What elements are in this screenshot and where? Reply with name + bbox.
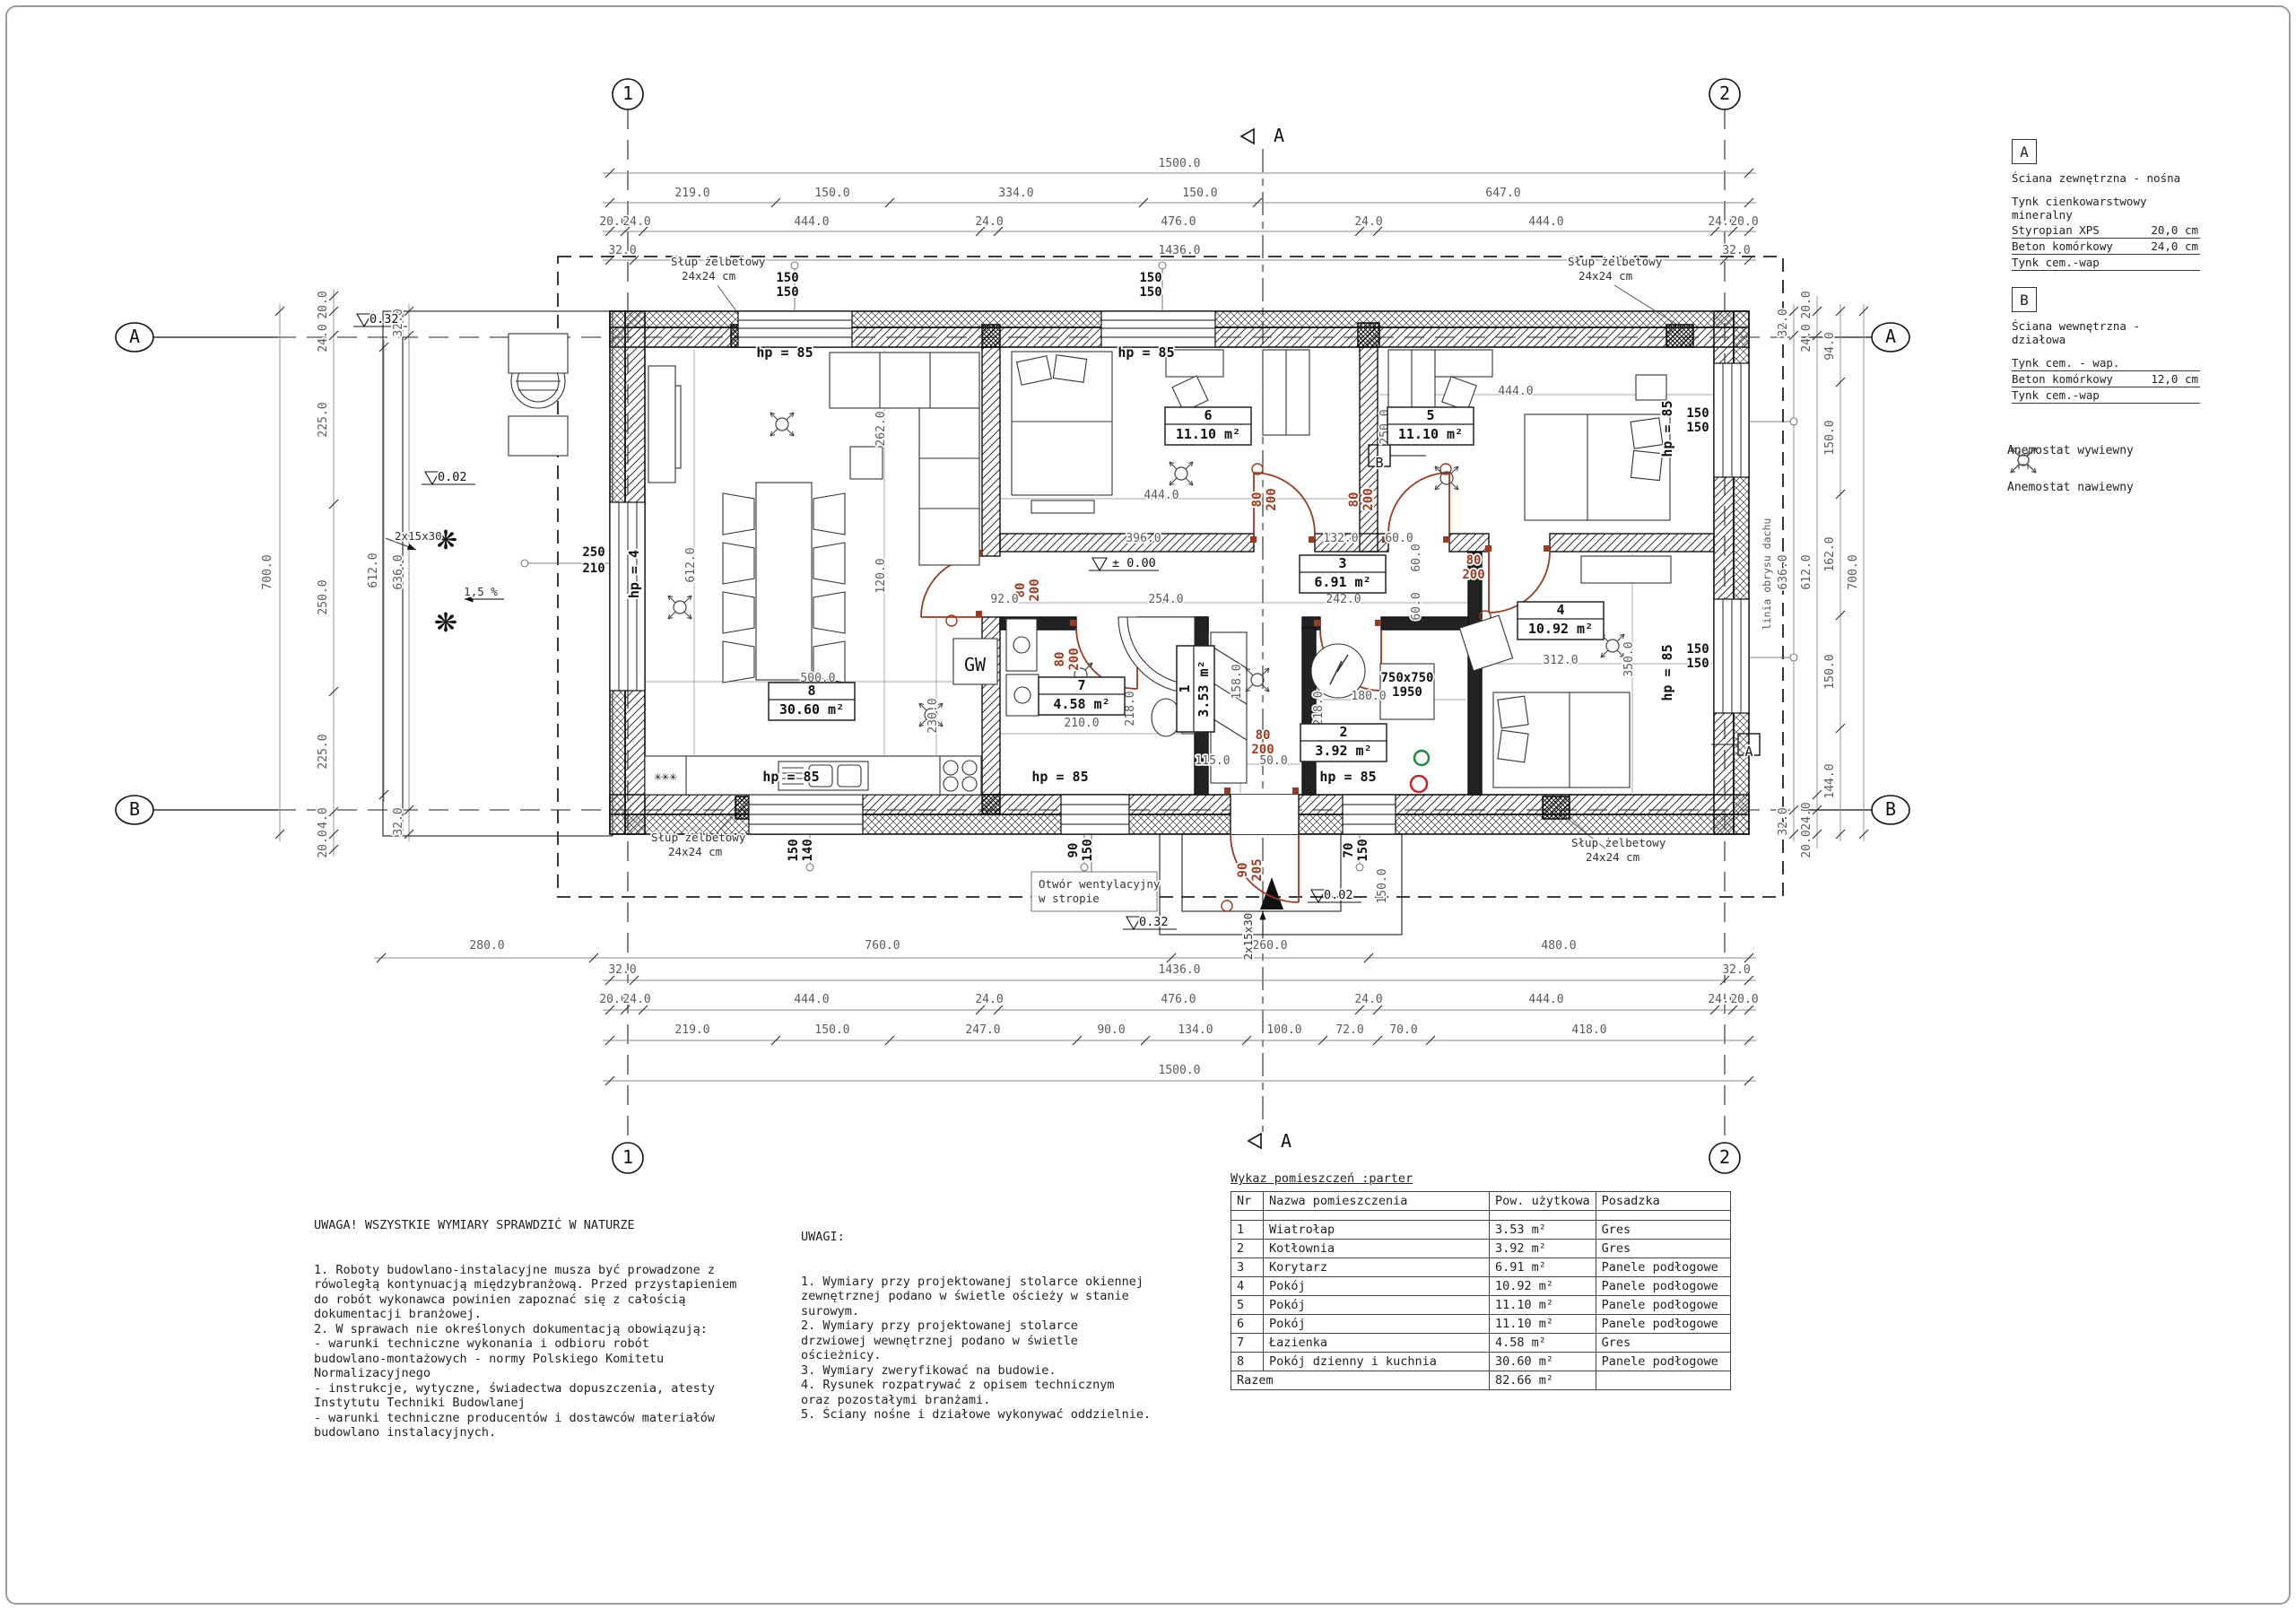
dim-label: 760.0 <box>865 939 900 953</box>
dim-label: 24x24 cm <box>1586 850 1639 864</box>
dim-label: 70.0 <box>1389 1023 1417 1037</box>
grid-axis-B: B <box>1885 798 1896 820</box>
svg-text:4: 4 <box>1556 602 1564 618</box>
dim-label: 250 <box>582 545 604 560</box>
grid-axis-A: A <box>1885 326 1896 347</box>
table-total-value: 82.66 m² <box>1490 1371 1596 1390</box>
dim-label: 24x24 cm <box>668 845 722 858</box>
vent-legend-row: Anemostat nawiewny <box>2007 481 2134 494</box>
table-cell: Panele podłogowe <box>1596 1258 1730 1277</box>
vent-legend: Anemostat wywiewny Anemostat nawiewny <box>2007 444 2134 494</box>
room-schedule: Wykaz pomieszczeń :parter NrNazwa pomies… <box>1231 1171 1731 1390</box>
table-row: 5Pokój11.10 m²Panele podłogowe <box>1231 1296 1731 1315</box>
table-blank-row <box>1231 1211 1731 1221</box>
table-header: Nr <box>1231 1192 1264 1211</box>
column-note: Słup żelbetowy <box>1571 836 1666 849</box>
room-label-8: 830.60 m² <box>769 683 855 720</box>
dim-label: 700.0 <box>1847 554 1860 589</box>
table-total-row: Razem82.66 m² <box>1231 1371 1731 1390</box>
dim-label: 24.0 <box>622 215 650 229</box>
table-row: 6Pokój11.10 m²Panele podłogowe <box>1231 1315 1731 1334</box>
table-cell: Panele podłogowe <box>1596 1353 1730 1371</box>
svg-text:6: 6 <box>1204 407 1212 423</box>
dim-label: 20.0 <box>1730 993 1758 1006</box>
legend-title: Ściana wewnętrzna - działowa <box>2012 319 2200 346</box>
dim-label: 140 <box>801 839 815 861</box>
notes-title: UWAGI: <box>801 1230 1151 1245</box>
table-header-row: NrNazwa pomieszczeniaPow. użytkowaPosadz… <box>1231 1192 1731 1211</box>
table-cell: Wiatrołap <box>1264 1221 1490 1240</box>
dim-label: 612.0 <box>684 547 698 582</box>
dim-label: 80 <box>1053 652 1067 667</box>
dim-label: 32.0 <box>1722 963 1750 977</box>
dim-label: 612.0 <box>367 553 380 587</box>
column-note: Słup żelbetowy <box>671 255 766 268</box>
dim-label: 134.0 <box>1178 1023 1213 1037</box>
room-label-1: 13.53 m² <box>1177 646 1214 732</box>
table-header: Nazwa pomieszczenia <box>1264 1192 1490 1211</box>
dim-label: 32.0 <box>608 244 636 257</box>
dim-label: 20.0 <box>317 291 330 318</box>
dim-label: 100.0 <box>1266 1023 1301 1037</box>
table-row: 4Pokój10.92 m²Panele podłogowe <box>1231 1277 1731 1296</box>
desk <box>1435 350 1492 377</box>
toilet <box>1152 699 1180 736</box>
room-label-4: 410.92 m² <box>1518 602 1604 640</box>
bench <box>1031 500 1094 513</box>
note-line: 4. Rysunek rozpatrywać z opisem technicz… <box>801 1378 1151 1393</box>
svg-text:3: 3 <box>1338 555 1346 571</box>
table-row: 7Łazienka4.58 m²Gres <box>1231 1334 1731 1353</box>
water-symbol <box>1411 776 1427 792</box>
table-cell: Panele podłogowe <box>1596 1315 1730 1334</box>
dim-label: 1436.0 <box>1159 963 1201 977</box>
dim-label: 150 <box>1686 406 1709 421</box>
dim-label: 312.0 <box>1543 654 1578 667</box>
chair <box>813 493 845 535</box>
dim-label: 150 <box>776 285 798 300</box>
dim-label: 1950 <box>1392 685 1422 700</box>
tv-cabinet <box>648 366 675 483</box>
note-line: Normalizacyjnego <box>314 1366 736 1381</box>
note-line: - instrukcje, wytyczne, świadectwa dopus… <box>314 1381 736 1397</box>
dim-label: 24.0 <box>1800 802 1813 830</box>
note-line: surowym. <box>801 1304 1151 1319</box>
table-cell: 2 <box>1231 1240 1264 1258</box>
dim-label: 636.0 <box>1777 554 1790 589</box>
fridge-symbol: ✳✳✳ <box>654 770 677 784</box>
note-line: oraz pozostałymi branżami. <box>801 1393 1151 1408</box>
dim-label: 254.0 <box>1148 593 1183 606</box>
dim-label: 24.0 <box>1354 215 1382 229</box>
dim-label: 32.0 <box>392 807 405 835</box>
note-line: drzwiowej wewnętrznej podano w świetle <box>801 1334 1151 1349</box>
vent-opening-note: Otwór wentylacyjny <box>1039 877 1161 891</box>
svg-text:3.92 m²: 3.92 m² <box>1315 743 1371 759</box>
svg-text:2: 2 <box>1339 724 1347 740</box>
dim-label: 418.0 <box>1571 1023 1606 1037</box>
dim-label: hp = 85 <box>1659 400 1675 457</box>
level-marker: 0.32 <box>1139 915 1169 929</box>
dim-label: 20.0 <box>317 830 330 857</box>
dim-label: hp = 4 <box>626 550 642 598</box>
dim-label: hp = 85 <box>762 769 819 785</box>
dim-label: 92.0 <box>990 593 1018 606</box>
svg-text:11.10 m²: 11.10 m² <box>1398 426 1463 442</box>
table-cell: Panele podłogowe <box>1596 1277 1730 1296</box>
dim-label: 72.0 <box>1335 1023 1363 1037</box>
uwagi-notes: UWAGI: 1. Wymiary przy projektowanej sto… <box>801 1200 1151 1452</box>
dim-label: 90 <box>1236 863 1250 878</box>
dim-label: 612.0 <box>1800 554 1813 589</box>
note-line: - warunki techniczne producentów i dosta… <box>314 1411 736 1426</box>
dim-label: hp = 85 <box>1118 344 1174 361</box>
coffee-table <box>850 447 883 479</box>
table-cell: Pokój <box>1264 1277 1490 1296</box>
dim-label: 115.0 <box>1195 754 1230 768</box>
grid-axis-B: B <box>129 798 140 820</box>
door-room5 <box>1388 473 1449 534</box>
svg-text:6.91 m²: 6.91 m² <box>1314 574 1370 590</box>
table-header: Posadzka <box>1596 1192 1730 1211</box>
vent-legend-label: Anemostat nawiewny <box>2007 481 2134 494</box>
dim-label: 444.0 <box>1528 215 1563 229</box>
table-cell: 3 <box>1231 1258 1264 1277</box>
gw-appliance-label: GW <box>964 654 987 675</box>
level-marker: 0.02 <box>438 470 467 484</box>
svg-text:8: 8 <box>807 683 815 699</box>
note-line: rówoległą kontynuacją międzybranżową. Pr… <box>314 1277 736 1292</box>
sofa <box>830 352 979 408</box>
dim-label: 144.0 <box>1823 763 1837 798</box>
svg-text:1: 1 <box>1177 684 1193 692</box>
chair <box>813 592 845 633</box>
room-schedule-title: Wykaz pomieszczeń :parter <box>1231 1171 1731 1186</box>
room-schedule-table: NrNazwa pomieszczeniaPow. użytkowaPosadz… <box>1231 1191 1731 1390</box>
table-row: 3Korytarz6.91 m²Panele podłogowe <box>1231 1258 1731 1277</box>
note-line: 5. Ściany nośne i działowe wykonywać odd… <box>801 1407 1151 1423</box>
dim-label: 150 <box>787 839 801 861</box>
dim-label: 50.0 <box>1259 754 1287 768</box>
gas-symbol <box>1414 751 1429 765</box>
note-line: Instytutu Techniki Budowlanej <box>314 1396 736 1411</box>
legend-layer: Beton komórkowy12,0 cm <box>2012 371 2200 387</box>
room-label-3: 36.91 m² <box>1300 555 1386 593</box>
floor-plan-sheet: 1500.0219.0150.0334.0150.0647.020.024.04… <box>0 0 2296 1610</box>
chair <box>813 543 845 584</box>
column-note: Słup żelbetowy <box>1568 255 1663 268</box>
note-line: ościeżnicy. <box>801 1348 1151 1363</box>
table-cell: Pokój dzienny i kuchnia <box>1264 1353 1490 1371</box>
dim-label: 80 <box>1256 728 1271 743</box>
table-cell: Pokój <box>1264 1315 1490 1334</box>
table-cell: 7 <box>1231 1334 1264 1353</box>
dim-label: 150.0 <box>1182 187 1217 200</box>
legend-layer: Tynk cem.-wap <box>2012 255 2200 271</box>
dim-label: 230.0 <box>926 698 940 733</box>
table-cell: Korytarz <box>1264 1258 1490 1277</box>
dim-label: 200 <box>1028 579 1042 601</box>
dim-label: 150 <box>1356 839 1370 861</box>
dim-label: 60.0 <box>1385 532 1413 545</box>
table-cell: 30.60 m² <box>1490 1353 1596 1371</box>
dim-label: 150 <box>776 271 798 285</box>
legend-letter-A: A <box>2012 139 2037 164</box>
dim-label: 219.0 <box>674 1023 709 1037</box>
dim-label: 60.0 <box>1410 592 1423 620</box>
dim-label: linia obrysu dachu <box>1761 518 1773 631</box>
dim-label: 444.0 <box>1144 489 1178 502</box>
dim-label: 32.0 <box>1777 309 1790 336</box>
dim-label: 1500.0 <box>1159 1064 1201 1077</box>
note-line: zewnętrznej podano w świetle ościeży w s… <box>801 1289 1151 1304</box>
dim-label: 80 <box>1250 492 1265 508</box>
wall-legend-A: A Ściana zewnętrzna - nośna Tynk cienkow… <box>2012 139 2200 271</box>
table-cell: 1 <box>1231 1221 1264 1240</box>
chair <box>723 641 754 683</box>
legend-layer: Tynk cem. - wap. <box>2012 355 2200 371</box>
table-cell: 10.92 m² <box>1490 1277 1596 1296</box>
dim-label: 444.0 <box>794 215 829 229</box>
dim-label: 476.0 <box>1161 215 1196 229</box>
dim-label: 200 <box>1462 568 1484 582</box>
dim-label: 70 <box>1342 843 1356 858</box>
legend-layer: Styropian XPS20,0 cm <box>2012 222 2200 239</box>
note-line: 1. Roboty budowlano-instalacyjne musza b… <box>314 1263 736 1278</box>
dim-label: 24x24 cm <box>1578 269 1632 283</box>
dim-label: 225.0 <box>317 734 330 769</box>
plant-icon: ❋ <box>434 596 457 640</box>
dim-label: 1500.0 <box>1159 157 1201 170</box>
dim-label: 210 <box>582 561 604 576</box>
stairs-note: 2x15x30 <box>395 529 442 543</box>
chair <box>723 543 754 584</box>
dim-label: 24.0 <box>317 324 330 352</box>
wall-type-tag: B <box>1375 455 1383 471</box>
dim-label: 334.0 <box>998 187 1033 200</box>
table-cell: 3.92 m² <box>1490 1240 1596 1258</box>
dim-label: 150 <box>1686 642 1709 657</box>
table-cell: Łazienka <box>1264 1334 1490 1353</box>
column-note: Słup żelbetowy <box>651 831 746 844</box>
room-label-6: 611.10 m² <box>1165 407 1251 445</box>
svg-text:3.53 m²: 3.53 m² <box>1196 660 1212 717</box>
dim-label: 94.0 <box>1823 332 1837 360</box>
dim-label: 444.0 <box>1498 385 1533 398</box>
note-line: dokumentacji branżowej. <box>314 1307 736 1322</box>
table-cell: 6 <box>1231 1315 1264 1334</box>
dining-table <box>756 483 812 680</box>
desk-chair <box>1172 376 1208 412</box>
table-cell: 6.91 m² <box>1490 1258 1596 1277</box>
dim-label: 80 <box>1466 553 1482 568</box>
general-notes: UWAGA! WSZYSTKIE WYMIARY SPRAWDZIĆ W NAT… <box>314 1188 736 1470</box>
section-marker: A <box>1274 125 1284 146</box>
note-line: 2. Wymiary przy projektowanej stolarce <box>801 1318 1151 1334</box>
legend-layer: Beton komórkowy24,0 cm <box>2012 239 2200 255</box>
svg-text:4.58 m²: 4.58 m² <box>1053 696 1109 712</box>
note-line: 2. W sprawach nie określonych dokumentac… <box>314 1322 736 1337</box>
table-cell: 8 <box>1231 1353 1264 1371</box>
dim-label: 200 <box>1067 648 1082 670</box>
dim-label: 20.0 <box>1800 830 1813 857</box>
svg-text:7: 7 <box>1077 677 1085 693</box>
table-cell: Gres <box>1596 1334 1730 1353</box>
dim-label: 150.0 <box>814 187 849 200</box>
dim-label: 480.0 <box>1541 939 1576 953</box>
table-cell: Panele podłogowe <box>1596 1296 1730 1315</box>
legend-letter-B: B <box>2012 287 2037 312</box>
dim-label: 150 <box>1686 657 1709 671</box>
dim-label: 24.0 <box>622 993 650 1006</box>
dim-label: 210.0 <box>1064 717 1099 730</box>
stairs-note: 2x15x30 <box>1241 913 1255 961</box>
dim-label: 262.0 <box>874 411 888 446</box>
dim-label: 150 <box>1139 285 1161 300</box>
level-marker: ± 0.00 <box>1112 556 1156 570</box>
table-row: 8Pokój dzienny i kuchnia30.60 m²Panele p… <box>1231 1353 1731 1371</box>
dim-label: 444.0 <box>1528 993 1563 1006</box>
table-cell: 5 <box>1231 1296 1264 1315</box>
table-cell: 3.53 m² <box>1490 1221 1596 1240</box>
dim-label: 150 <box>1139 271 1161 285</box>
svg-text:11.10 m²: 11.10 m² <box>1176 426 1240 442</box>
legend-title: Ściana zewnętrzna - nośna <box>2012 171 2200 185</box>
dim-label: hp = 85 <box>1319 769 1376 785</box>
dim-label: 476.0 <box>1161 993 1196 1006</box>
dim-label: 150 <box>1081 839 1095 861</box>
table-cell: 4.58 m² <box>1490 1334 1596 1353</box>
wall-legend-B: B Ściana wewnętrzna - działowa Tynk cem.… <box>2012 287 2200 404</box>
dim-label: 80 <box>1347 492 1361 508</box>
level-marker: 0.32 <box>370 312 399 326</box>
dim-label: 20.0 <box>1800 291 1813 318</box>
dim-label: 150.0 <box>814 1023 849 1037</box>
dim-label: hp = 85 <box>1031 769 1088 785</box>
dim-label: 132.0 <box>1323 532 1358 545</box>
dim-label: 260.0 <box>1252 939 1287 953</box>
svg-text:10.92 m²: 10.92 m² <box>1528 621 1593 637</box>
dim-label: 24x24 cm <box>682 269 735 283</box>
vanity <box>1006 619 1037 671</box>
dim-label: 24.0 <box>1800 324 1813 352</box>
table-cell: Gres <box>1596 1221 1730 1240</box>
table-cell: Gres <box>1596 1240 1730 1258</box>
wall-type-tag: A <box>1744 744 1752 760</box>
note-line: budowlano instalacyjnych. <box>314 1425 736 1440</box>
note-line: do robót wykonawca powinien zapoznać się… <box>314 1292 736 1308</box>
dim-label: 24.0 <box>1354 993 1382 1006</box>
table-total-label: Razem <box>1231 1371 1490 1390</box>
table-cell <box>1596 1371 1730 1390</box>
dim-label: 242.0 <box>1326 593 1361 606</box>
chair <box>723 592 754 633</box>
dim-label: 20.0 <box>1730 215 1758 229</box>
dim-label: 90.0 <box>1097 1023 1125 1037</box>
media-symbols <box>1411 751 1429 792</box>
table-header: Pow. użytkowa <box>1490 1192 1596 1211</box>
dim-label: 150.0 <box>1376 868 1389 903</box>
dim-label: 32.0 <box>1777 807 1790 835</box>
table-cell: Kotłownia <box>1264 1240 1490 1258</box>
grid-axis-2: 2 <box>1719 83 1730 104</box>
dim-label: 150.0 <box>1823 420 1837 455</box>
desk-chair <box>1442 377 1476 411</box>
dim-label: 250.0 <box>317 579 330 614</box>
note-line: - warunki techniczne wykonania i odbioru… <box>314 1336 736 1352</box>
note-line: budowlano-montażowych - normy Polskiego … <box>314 1352 736 1367</box>
dim-label: 60.0 <box>1410 544 1423 571</box>
table-cell: Pokój <box>1264 1296 1490 1315</box>
dim-label: 396.0 <box>1126 532 1161 545</box>
dim-label: w stropie <box>1039 892 1100 905</box>
room-label-7: 74.58 m² <box>1039 677 1125 715</box>
dim-label: 647.0 <box>1485 187 1520 200</box>
dim-label: 200 <box>1361 488 1376 510</box>
dim-label: 150.0 <box>1823 654 1837 689</box>
dim-label: 150 <box>1686 421 1709 435</box>
section-arrow <box>1248 1134 1261 1148</box>
dim-label: 24.0 <box>975 215 1003 229</box>
legend-layer: Tynk cienkowarstwowy mineralny <box>2012 194 2200 222</box>
dim-label: hp = 85 <box>756 344 813 361</box>
dim-label: 120.0 <box>874 558 888 593</box>
dim-label: 700.0 <box>261 554 274 589</box>
legend-layer: Tynk cem.-wap <box>2012 387 2200 404</box>
notes-title: UWAGA! WSZYSTKIE WYMIARY SPRAWDZIĆ W NAT… <box>314 1218 736 1233</box>
room-label-2: 23.92 m² <box>1300 724 1387 761</box>
nightstand <box>1636 375 1666 400</box>
slope-note: 1,5 % <box>464 585 498 598</box>
table-cell: 11.10 m² <box>1490 1296 1596 1315</box>
svg-text:30.60 m²: 30.60 m² <box>779 701 844 718</box>
dim-label: 218.0 <box>1124 691 1137 726</box>
table-cell: 11.10 m² <box>1490 1315 1596 1334</box>
grid-axis-2: 2 <box>1719 1146 1730 1168</box>
dim-label: 636.0 <box>392 554 405 589</box>
level-marker: 0.02 <box>1324 888 1353 902</box>
dim-label: 247.0 <box>965 1023 1000 1037</box>
dim-label: 218.0 <box>1312 691 1326 726</box>
dim-label: 162.0 <box>1823 536 1837 571</box>
grid-axis-1: 1 <box>622 1146 633 1168</box>
dim-label: hp = 85 <box>1659 644 1675 701</box>
anemostat-supply-icon <box>2007 444 2039 476</box>
room-label-5: 511.10 m² <box>1387 407 1474 445</box>
grid-axis-1: 1 <box>622 83 633 104</box>
table-cell: 4 <box>1231 1277 1264 1296</box>
washing-machine <box>1006 674 1039 716</box>
grid-axis-A: A <box>129 326 140 347</box>
dim-label: 350.0 <box>1622 641 1636 676</box>
dim-label: 444.0 <box>794 993 829 1006</box>
dim-label: 205 <box>1250 858 1265 881</box>
chair <box>723 493 754 535</box>
table-row: 2Kotłownia3.92 m²Gres <box>1231 1240 1731 1258</box>
svg-text:5: 5 <box>1426 407 1434 423</box>
dim-label: 32.0 <box>1722 244 1750 257</box>
dim-label: 200 <box>1265 488 1279 510</box>
dim-label: 180.0 <box>1351 690 1386 703</box>
dim-label: 280.0 <box>469 939 504 953</box>
section-marker: A <box>1281 1130 1291 1152</box>
note-line: 3. Wymiary zweryfikować na budowie. <box>801 1363 1151 1379</box>
dim-label: 219.0 <box>674 187 709 200</box>
dim-label: 90 <box>1066 843 1081 858</box>
dim-label: 32.0 <box>608 963 636 977</box>
dim-label: 158.0 <box>1231 664 1244 699</box>
dim-label: 750x750 <box>1380 671 1433 685</box>
